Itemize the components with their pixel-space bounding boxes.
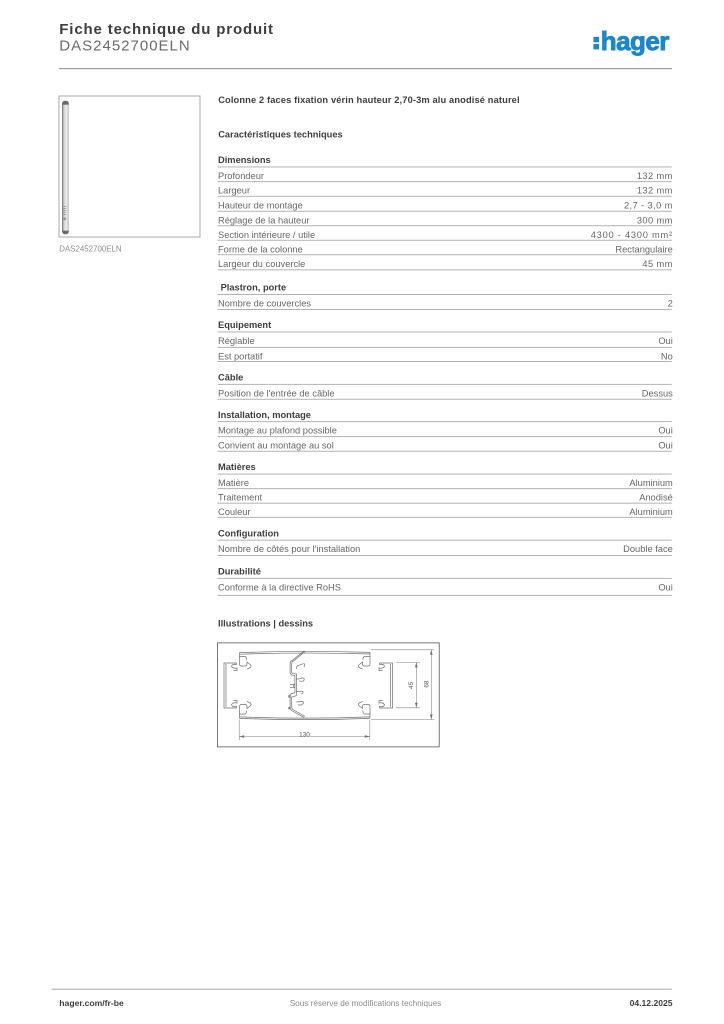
svg-text:Dessus: Dessus (642, 388, 673, 398)
svg-text:Câble: Câble (218, 373, 243, 383)
svg-text:Conforme à la directive RoHS: Conforme à la directive RoHS (218, 582, 341, 592)
svg-text:Hauteur de montage: Hauteur de montage (218, 200, 303, 210)
svg-text:Anodisé: Anodisé (639, 493, 673, 503)
svg-text:Nombre de côtés pour l'install: Nombre de côtés pour l'installation (218, 544, 360, 554)
svg-text:Oui: Oui (658, 441, 672, 451)
svg-text:Illustrations | dessins: Illustrations | dessins (218, 619, 313, 629)
svg-text:Largeur du couvercle: Largeur du couvercle (218, 259, 305, 269)
svg-text:Est portatif: Est portatif (218, 351, 263, 361)
svg-text:Oui: Oui (658, 426, 672, 436)
svg-text:DAS2452700ELN: DAS2452700ELN (59, 37, 190, 54)
svg-text:Convient au montage au sol: Convient au montage au sol (218, 441, 334, 451)
svg-text:300 mm: 300 mm (637, 215, 673, 225)
svg-text:Forme de la colonne: Forme de la colonne (218, 244, 303, 254)
svg-text:130: 130 (299, 732, 310, 739)
svg-text:Nombre de couvercles: Nombre de couvercles (218, 299, 311, 309)
svg-text:04.12.2025: 04.12.2025 (630, 998, 673, 1008)
svg-text:Couleur: Couleur (218, 507, 251, 517)
svg-text:Caractéristiques techniques: Caractéristiques techniques (218, 129, 343, 139)
svg-text:Profondeur: Profondeur (218, 171, 264, 181)
svg-text:hager.com/fr-be: hager.com/fr-be (59, 998, 124, 1008)
svg-text:Configuration: Configuration (218, 528, 279, 538)
svg-text:Aluminium: Aluminium (629, 507, 673, 517)
svg-text:Position de l'entrée de câble: Position de l'entrée de câble (218, 388, 335, 398)
svg-text:Matière: Matière (218, 478, 249, 488)
svg-text:Installation, montage: Installation, montage (218, 410, 311, 420)
svg-text:Traitement: Traitement (218, 493, 263, 503)
svg-text:45 mm: 45 mm (642, 259, 672, 269)
svg-text:132 mm: 132 mm (637, 171, 673, 181)
svg-text:Plastron, porte: Plastron, porte (218, 283, 286, 293)
svg-text:Equipement: Equipement (218, 320, 271, 330)
svg-text:68: 68 (424, 680, 431, 688)
svg-text:Colonne 2 faces fixation vérin: Colonne 2 faces fixation vérin hauteur 2… (218, 95, 520, 105)
svg-text:Section intérieure / utile: Section intérieure / utile (218, 230, 315, 240)
svg-text:Dimensions: Dimensions (218, 155, 271, 165)
svg-text:Sous réserve de modifications: Sous réserve de modifications techniques (290, 999, 442, 1008)
svg-text:Largeur: Largeur (218, 186, 250, 196)
svg-text:No: No (661, 351, 673, 361)
svg-text:Aluminium: Aluminium (629, 478, 673, 488)
svg-text:Durabilité: Durabilité (218, 567, 261, 577)
svg-text:2: 2 (668, 299, 673, 309)
svg-text:Rectangulaire: Rectangulaire (615, 244, 672, 254)
svg-text:hager: hager (601, 26, 669, 56)
svg-text:Réglable: Réglable (218, 336, 255, 346)
svg-text:132 mm: 132 mm (637, 186, 673, 196)
svg-text:2,7 - 3,0 m: 2,7 - 3,0 m (624, 200, 673, 210)
svg-text:Double face: Double face (623, 544, 673, 554)
svg-text:DAS2452700ELN: DAS2452700ELN (59, 244, 122, 253)
svg-text:Oui: Oui (658, 582, 672, 592)
svg-text:Fiche technique du produit: Fiche technique du produit (59, 21, 274, 38)
svg-text:Réglage de la hauteur: Réglage de la hauteur (218, 215, 310, 225)
svg-text:Oui: Oui (658, 336, 672, 346)
svg-text:45: 45 (408, 681, 415, 689)
svg-text:Matières: Matières (218, 462, 256, 472)
svg-text:4300 - 4300 mm²: 4300 - 4300 mm² (591, 230, 673, 240)
svg-text:Montage au plafond possible: Montage au plafond possible (218, 426, 337, 436)
